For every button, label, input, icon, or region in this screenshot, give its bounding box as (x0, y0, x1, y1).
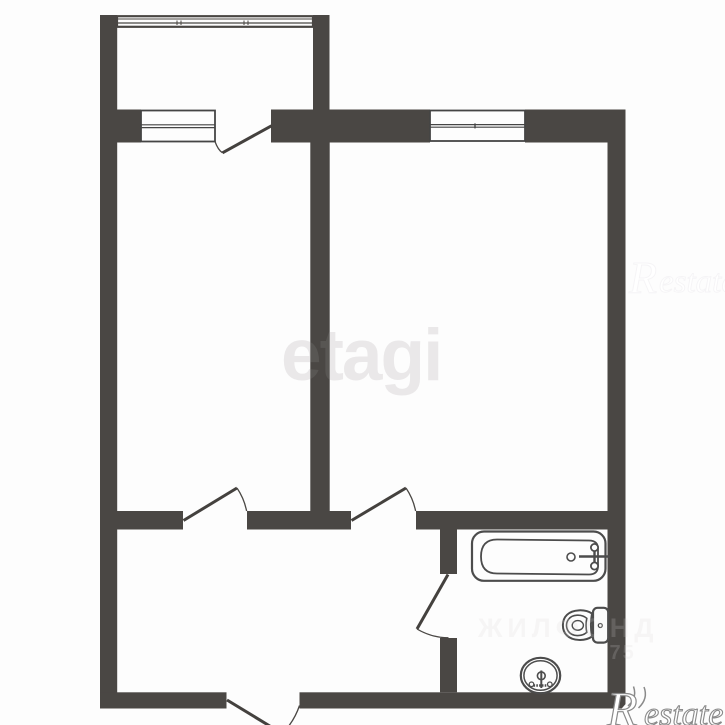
svg-text:ЖИЛФОНД: ЖИЛФОНД (477, 613, 659, 643)
svg-text:estate: estate (659, 264, 725, 300)
svg-text:R: R (606, 681, 638, 725)
svg-text:75: 75 (610, 642, 636, 664)
svg-text:R: R (628, 252, 657, 303)
svg-text:etagi: etagi (281, 315, 441, 396)
svg-text:estate: estate (644, 696, 723, 725)
